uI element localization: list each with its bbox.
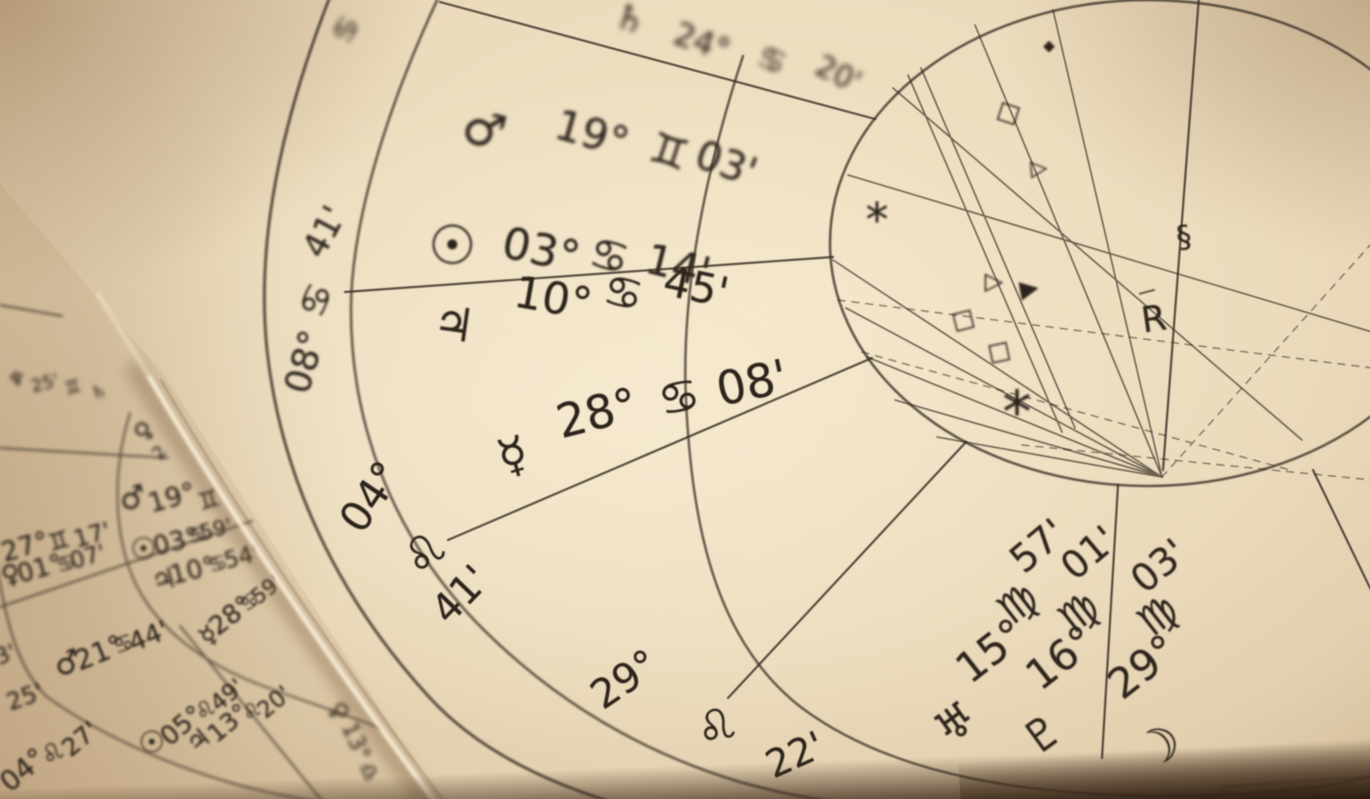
table-shadow-bottom [0,0,1370,799]
astrology-chart-photo: 41'♋08°29°♌22'♋♄24°♋20'♂19°♊03'☉03°♋14'♃… [0,0,1370,799]
